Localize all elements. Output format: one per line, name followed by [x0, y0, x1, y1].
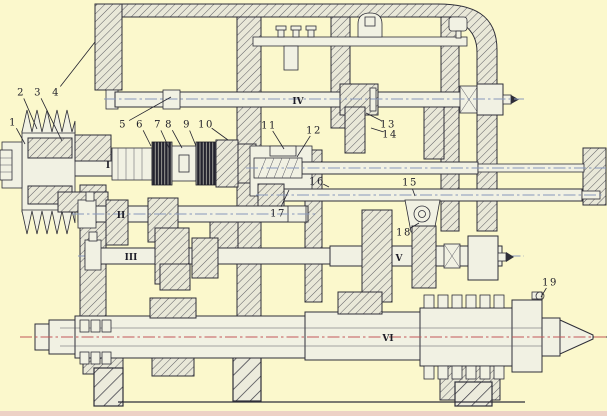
part-label-1: 1 [9, 118, 17, 129]
gear-on-spindle-c [152, 358, 194, 376]
shaft-label-VI: VI [381, 334, 393, 344]
gear-on-III-c [160, 264, 190, 290]
shaft-label-V: V [395, 254, 404, 264]
splined-section [112, 148, 152, 180]
gear-on-V [412, 226, 436, 288]
gear-on-spindle-a [150, 298, 196, 318]
clutch-pack-right [196, 142, 216, 185]
spindle-mid-section [305, 312, 420, 360]
part-label-18: 18 [396, 228, 412, 239]
scanned-gearbox-drawing: 12345678910111213141516171819IIIIIIIVVVI [0, 0, 607, 416]
shaft-V-end-flange [468, 236, 498, 280]
shaft-III-cap-bolt [89, 232, 97, 241]
part-label-9: 9 [183, 120, 191, 131]
bell-cap-bolt [365, 17, 375, 26]
part-label-8: 8 [165, 120, 173, 131]
part-label-6: 6 [136, 120, 144, 131]
gear-on-III-b [192, 238, 218, 278]
shaft-I-end-cap-assembly [0, 142, 22, 188]
adjusting-screw [503, 95, 511, 104]
part-label-10: 10 [198, 120, 214, 131]
spindle-flange [512, 300, 542, 372]
part-label-19: 19 [542, 278, 558, 289]
retaining-ring [370, 88, 376, 111]
right-rod-cap [449, 17, 467, 31]
shaft-IV-collar [163, 90, 180, 109]
shaft-label-II: II [117, 211, 125, 221]
right-rod-stem [456, 31, 461, 38]
gear-below-IV-a [345, 107, 365, 153]
clutch-key [179, 155, 189, 172]
center-foot [233, 355, 261, 401]
scan-edge-artifact [0, 411, 607, 416]
rod-hanger [284, 46, 298, 70]
gearbox-sectional-drawing: 12345678910111213141516171819IIIIIIIVVVI [0, 0, 607, 416]
left-foot [94, 368, 123, 406]
rod-bolts [276, 26, 316, 37]
gear-on-spindle-b [338, 292, 382, 314]
gear-below-IV-b [424, 107, 444, 159]
part-label-16: 16 [309, 177, 325, 188]
shaft-III-left-cap [85, 240, 101, 270]
shaft-V-screw [498, 253, 506, 261]
pulley-hub-section [28, 138, 72, 158]
shaft-label-III: III [125, 253, 138, 263]
shaft-label-IV: IV [292, 97, 304, 107]
part-label-4: 4 [52, 88, 60, 99]
part-label-7: 7 [154, 120, 162, 131]
part-label-5: 5 [119, 120, 127, 131]
clutch-gear-hub [216, 140, 238, 187]
part-label-17: 17 [270, 209, 286, 220]
flange-bolt-19 [532, 292, 544, 300]
part-label-14: 14 [382, 130, 398, 141]
part-label-2: 2 [17, 88, 25, 99]
part-label-3: 3 [34, 88, 42, 99]
gear-on-II-a [106, 200, 128, 245]
part-label-12: 12 [306, 126, 322, 137]
part-label-15: 15 [402, 178, 418, 189]
large-gear-on-V [362, 210, 392, 302]
front-bearing-housing [75, 135, 111, 161]
v-belt-pulley [22, 110, 75, 234]
shaft-II-cap-bolt [86, 192, 94, 201]
clutch-pack-left [152, 142, 172, 185]
part-label-11: 11 [261, 121, 277, 132]
shaft-label-I: I [106, 161, 110, 171]
left-wall-upper [95, 4, 122, 90]
shaft-IV-end-cap [477, 84, 503, 115]
